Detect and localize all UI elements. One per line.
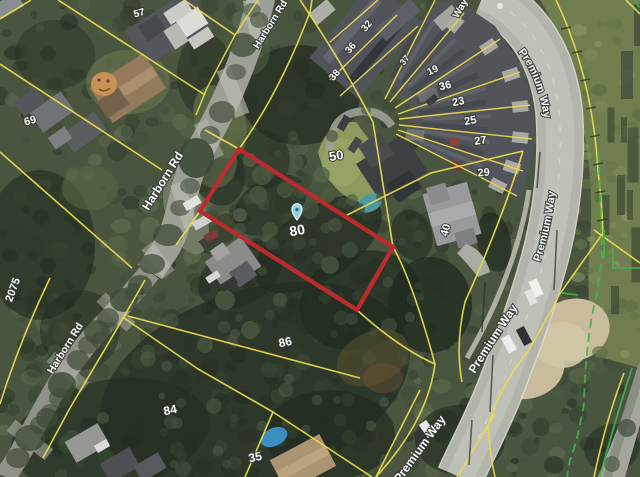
svg-text:80: 80 xyxy=(288,221,306,239)
svg-text:29: 29 xyxy=(477,167,490,180)
svg-text:25: 25 xyxy=(463,114,477,128)
svg-text:50: 50 xyxy=(328,147,345,164)
svg-text:23: 23 xyxy=(451,95,465,109)
svg-text:27: 27 xyxy=(474,134,488,148)
